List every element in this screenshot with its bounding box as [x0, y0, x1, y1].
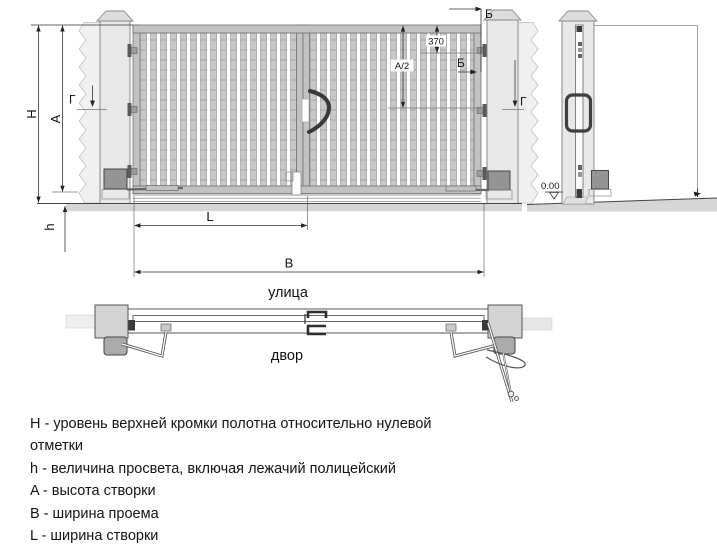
plan-arm-left: [122, 332, 166, 356]
gate-drawing-page: { "labels": { "dim_top_level": "H", "dim…: [0, 0, 717, 553]
plan-arm-mount-right: [446, 324, 456, 331]
plan-arm-mount-left: [161, 324, 171, 331]
front-view: H A h L B: [24, 7, 538, 277]
base-wedge: [563, 197, 588, 204]
dimension-H: H: [24, 25, 41, 202]
gate-bottom-rail: [133, 186, 481, 194]
section-B-mid-label: Б: [457, 56, 465, 70]
wall-stub-right: [518, 23, 538, 204]
plan-post-right: [488, 305, 522, 338]
dimension-A: A: [48, 25, 78, 192]
plan-fence-stub-left: [66, 315, 96, 328]
legend-line: h - величина просвета, включая лежачий п…: [30, 458, 500, 480]
plan-view: улица двор: [66, 285, 552, 402]
legend-line: H - уровень верхней кромки полотна относ…: [30, 413, 500, 435]
zero-level-mark: 0.00: [541, 181, 563, 199]
legend-line: отметки: [30, 435, 500, 457]
ground-side: [527, 198, 717, 212]
dim-B-label: B: [285, 256, 294, 271]
legend-line: L - ширина створки: [30, 525, 500, 547]
gate-top-rail: [133, 25, 481, 33]
leaf-right-bars: [310, 33, 475, 186]
dim-A2-label: A/2: [395, 61, 409, 72]
plan-post-left: [95, 305, 128, 338]
open-leaf-end-marker: [694, 189, 702, 197]
drop-latch: [292, 172, 301, 195]
speed-bump-strip: [133, 195, 481, 201]
plan-fence-stub-right: [522, 318, 552, 330]
side-view: 0.00: [527, 11, 717, 212]
post-cap-left: [97, 11, 133, 21]
actuator-arm-right: [446, 186, 476, 191]
dim-370-label: 370: [428, 36, 444, 47]
ground-front: [66, 204, 522, 212]
wall-stub-left: [79, 23, 100, 204]
leaf-left-bars: [140, 33, 297, 186]
legend: H - уровень верхней кромки полотна относ…: [30, 413, 500, 547]
dimension-B: B: [134, 203, 484, 277]
street-label: улица: [268, 285, 309, 301]
center-lock-label: [302, 99, 309, 122]
zero-level-label: 0.00: [541, 181, 560, 192]
section-B-top-label: Б: [485, 7, 493, 21]
legend-line: A - высота створки: [30, 480, 500, 502]
legend-line: B - ширина проема: [30, 503, 500, 525]
yard-label: двор: [271, 348, 303, 364]
plan-hinge-left: [129, 320, 136, 331]
section-G-right-label: Г: [520, 95, 527, 109]
section-G-left-label: Г: [69, 93, 76, 107]
dim-A-label: A: [48, 114, 63, 123]
dimension-h: h: [42, 206, 67, 252]
dim-L-label: L: [206, 209, 213, 224]
post-cap-side: [559, 11, 597, 21]
dim-h-label: h: [42, 223, 57, 230]
dim-H-label: H: [24, 109, 39, 118]
actuator-arm-left: [146, 186, 178, 191]
gate-leaf-left: [133, 25, 303, 194]
